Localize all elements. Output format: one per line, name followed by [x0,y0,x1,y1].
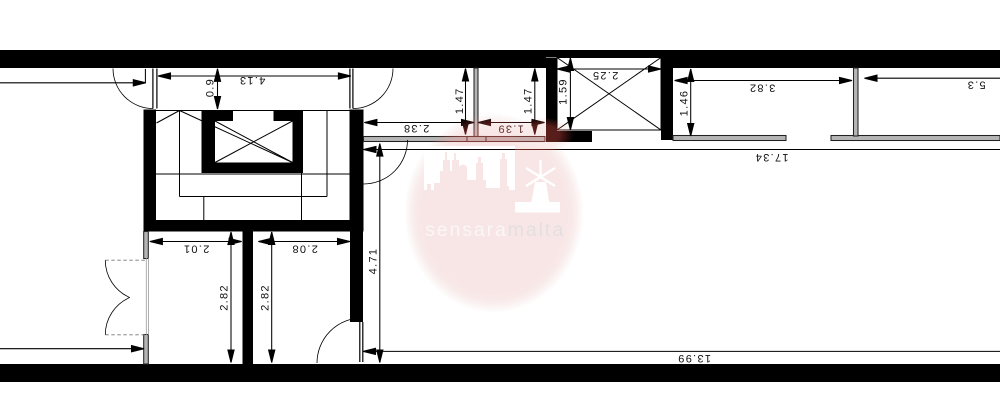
svg-text:sensaramalta: sensaramalta [425,219,565,241]
